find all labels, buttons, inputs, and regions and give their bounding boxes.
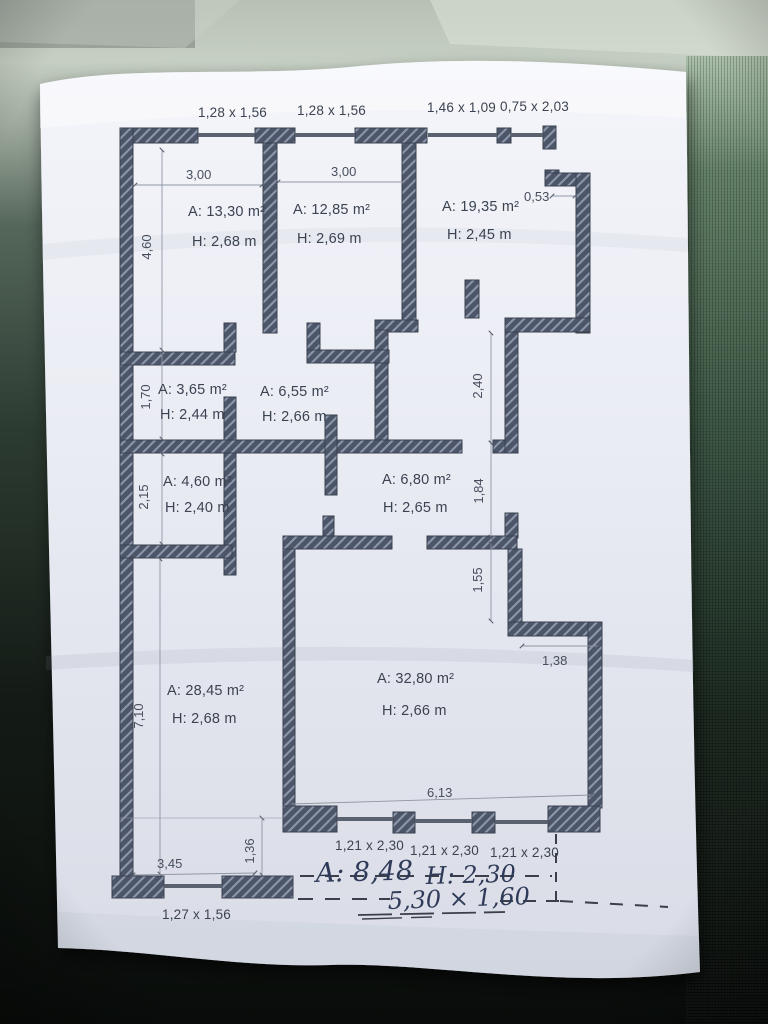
photo-of-floor-plan: 3,00 3,00 4,60 0,53 1,70 2,15 7,10 2,40 …: [0, 0, 768, 1024]
photo-vignette: [0, 0, 768, 1024]
floor-plan-photo: 3,00 3,00 4,60 0,53 1,70 2,15 7,10 2,40 …: [0, 0, 768, 1024]
